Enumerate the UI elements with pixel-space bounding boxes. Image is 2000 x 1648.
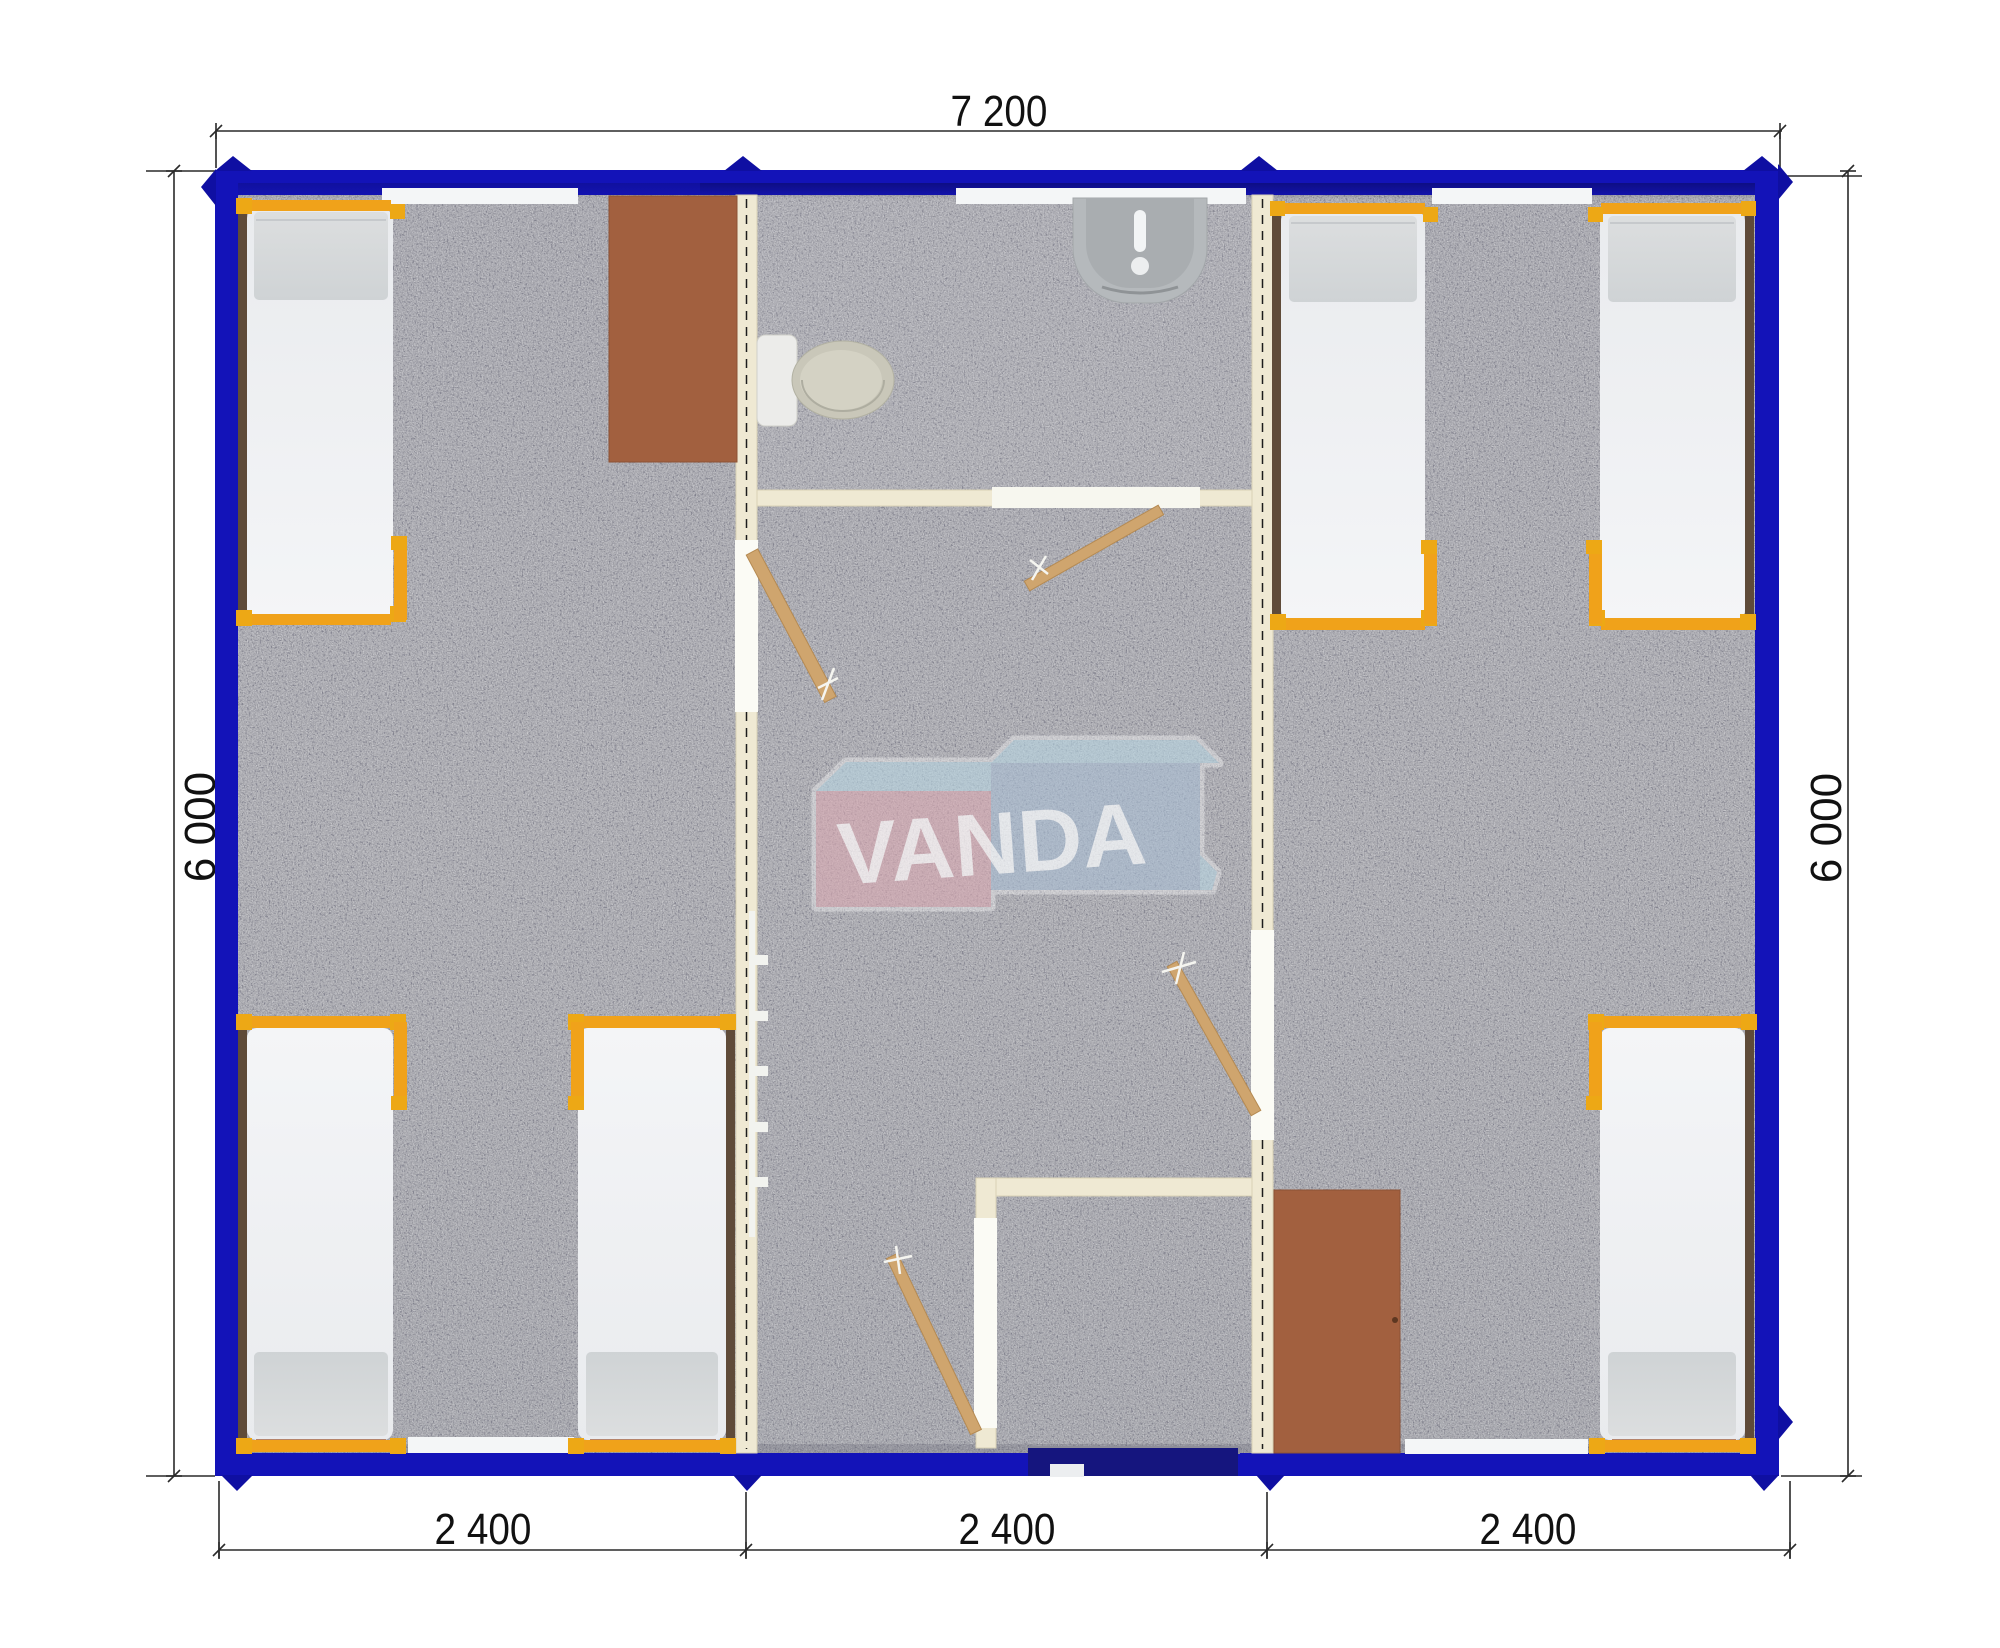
svg-text:6 000: 6 000 <box>1802 773 1851 883</box>
svg-text:2 400: 2 400 <box>1480 1504 1577 1554</box>
svg-text:2 400: 2 400 <box>959 1504 1056 1554</box>
svg-text:2 400: 2 400 <box>435 1504 532 1554</box>
svg-text:7 200: 7 200 <box>951 86 1048 136</box>
